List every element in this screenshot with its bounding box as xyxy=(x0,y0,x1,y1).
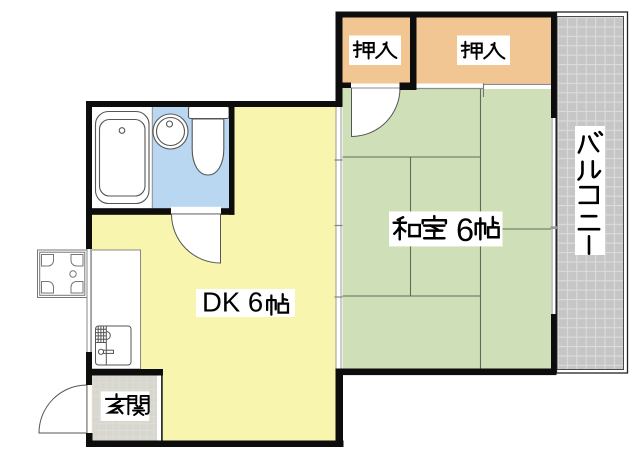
svg-text:DK 6: DK 6 xyxy=(202,287,263,318)
svg-text:6: 6 xyxy=(456,212,474,248)
